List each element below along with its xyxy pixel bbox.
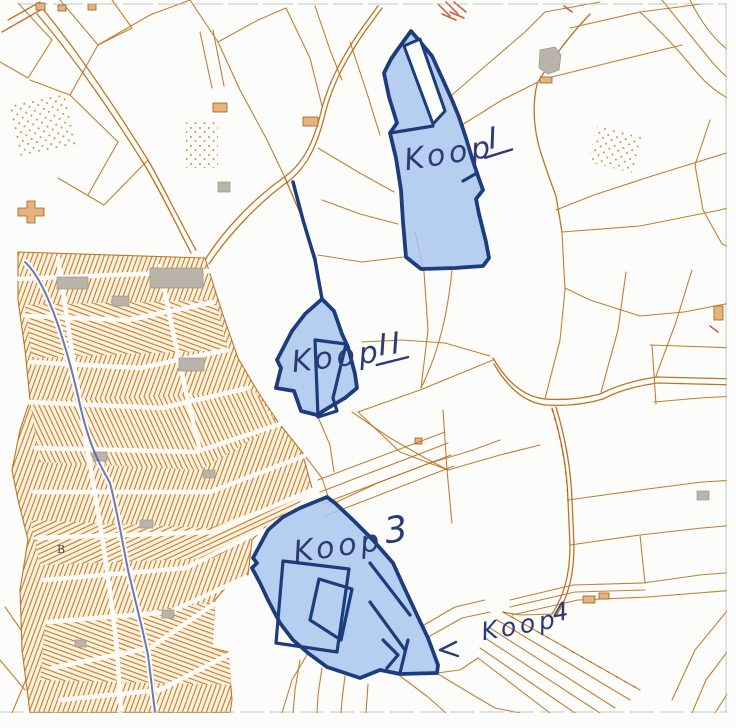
place-label-b: B <box>57 543 65 556</box>
koop-3-numeral: 3 <box>382 508 414 552</box>
scanned-map-page: Koop I Koop II Koop 3 Koop 4 B <box>0 0 736 728</box>
farm-building <box>539 47 561 74</box>
cadastral-map: Koop I Koop II Koop 3 Koop 4 B <box>0 0 736 728</box>
